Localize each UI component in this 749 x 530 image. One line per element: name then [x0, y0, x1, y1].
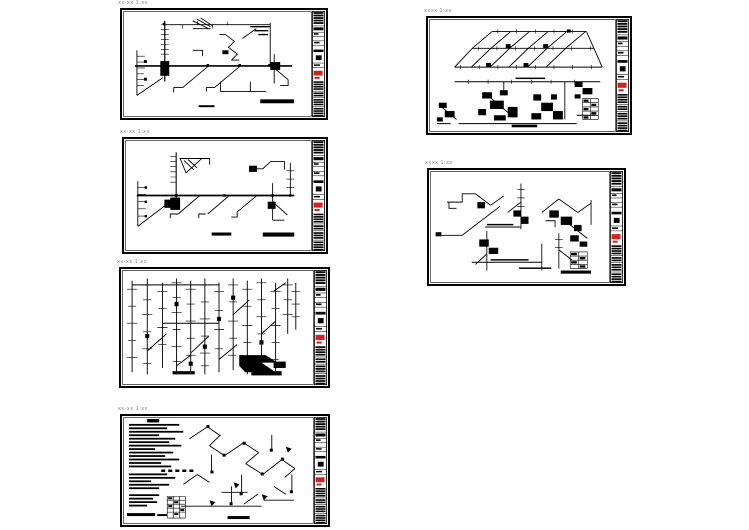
drawing-title-bars — [127, 513, 250, 519]
sheet-label: xx-xx 1:xx — [117, 260, 147, 265]
title-block — [312, 140, 325, 251]
riser-diagram-1 — [123, 11, 312, 117]
title-block — [616, 19, 629, 132]
dense-annotation-block — [239, 355, 285, 375]
drawing-title-bars — [173, 371, 195, 374]
isometric-slab — [455, 29, 603, 69]
drawing-sheet-4[interactable] — [120, 414, 330, 527]
legend-table — [167, 496, 185, 518]
pipe-network — [181, 425, 295, 506]
notes-axonometric-diagram — [123, 417, 314, 524]
title-block — [314, 417, 327, 524]
axonometric-grid-diagram — [429, 19, 616, 132]
riser-diagram-3 — [122, 270, 314, 385]
drawing-sheet-6[interactable] — [427, 168, 626, 286]
drawing-sheet-3[interactable] — [119, 267, 330, 388]
annotation-clusters — [437, 82, 593, 124]
sheet-label: xx-xx 1:xx — [118, 1, 148, 6]
title-block — [312, 11, 325, 117]
riser-columns — [127, 279, 300, 375]
sheet-label: xxxx 1:xx — [424, 9, 452, 14]
drawing-title-bars — [459, 115, 597, 127]
title-block — [610, 171, 623, 283]
drawing-sheet-5[interactable] — [426, 16, 632, 135]
pipe-network — [436, 183, 591, 270]
axonometric-diagram — [430, 171, 610, 283]
pipe-network — [135, 18, 292, 96]
drawing-title-bars — [212, 233, 295, 237]
schedule-table — [583, 99, 599, 120]
notes-text-block — [129, 419, 193, 506]
sheet-label: xx-xx 1:xx — [120, 130, 150, 135]
drawing-sheet-2[interactable] — [122, 137, 328, 254]
sheet-label: xxxx 1:xx — [425, 161, 453, 166]
sheet-label: xx-xx 1:xx — [118, 407, 148, 412]
schedule-table — [570, 252, 587, 269]
drawing-sheet-1[interactable] — [120, 8, 328, 120]
title-block — [314, 270, 327, 385]
pipe-network — [137, 152, 294, 226]
drawing-title-bars — [199, 99, 294, 107]
riser-diagram-2 — [125, 140, 312, 251]
